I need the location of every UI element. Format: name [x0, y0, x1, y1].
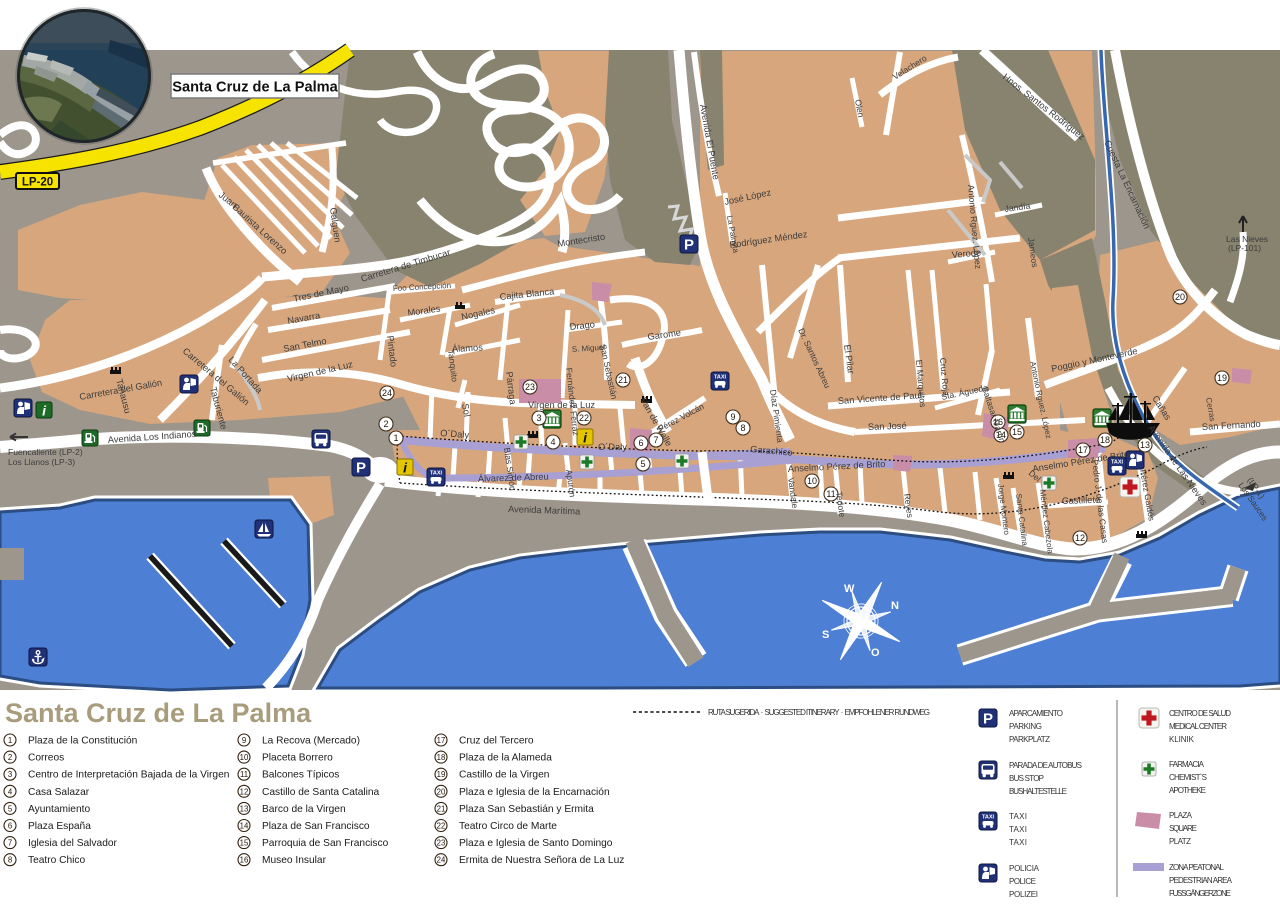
svg-text:6: 6 — [8, 822, 12, 831]
svg-text:APARCAMIENTO: APARCAMIENTO — [1009, 709, 1063, 718]
svg-text:Los Llanos (LP-3): Los Llanos (LP-3) — [8, 457, 75, 467]
svg-text:MEDICAL CENTER: MEDICAL CENTER — [1169, 722, 1227, 731]
svg-text:Plaza de la Constitución: Plaza de la Constitución — [28, 736, 137, 747]
svg-text:4: 4 — [8, 787, 13, 796]
svg-text:24: 24 — [437, 856, 446, 865]
svg-text:KLINIK: KLINIK — [1169, 735, 1195, 744]
svg-text:LP-20: LP-20 — [22, 177, 53, 189]
svg-text:TAXI: TAXI — [1009, 812, 1027, 821]
svg-text:TAXI: TAXI — [1009, 825, 1027, 834]
svg-text:18: 18 — [437, 753, 446, 762]
svg-text:PARADA DE AUTOBUS: PARADA DE AUTOBUS — [1009, 761, 1082, 770]
svg-text:Plaza e Iglesia de Santo Domin: Plaza e Iglesia de Santo Domingo — [459, 838, 613, 849]
svg-text:Plaza San Sebastián y Ermita: Plaza San Sebastián y Ermita — [459, 804, 594, 815]
svg-text:BUS STOP: BUS STOP — [1009, 774, 1044, 783]
svg-text:2: 2 — [8, 753, 12, 762]
svg-text:PARKING: PARKING — [1009, 722, 1042, 731]
svg-text:Teatro Chico: Teatro Chico — [28, 855, 86, 866]
svg-text:FUSSGÄNGERZONE: FUSSGÄNGERZONE — [1169, 889, 1231, 898]
svg-text:Ayuntamiento: Ayuntamiento — [28, 804, 90, 815]
svg-text:1: 1 — [8, 736, 12, 745]
svg-text:15: 15 — [240, 839, 249, 848]
svg-text:11: 11 — [240, 770, 248, 779]
svg-text:Iglesia del Salvador: Iglesia del Salvador — [28, 838, 118, 849]
svg-text:POLIZEI: POLIZEI — [1009, 890, 1038, 899]
svg-text:1: 1 — [393, 433, 398, 443]
svg-text:3: 3 — [8, 770, 12, 779]
svg-text:RUTA SUGERIDA · SUGGESTED IT: RUTA SUGERIDA · SUGGESTED ITINERARY · EM… — [708, 708, 930, 717]
svg-text:14: 14 — [240, 822, 249, 831]
svg-text:CHEMIST`S: CHEMIST`S — [1169, 773, 1207, 782]
svg-text:Parroquia de San Francisco: Parroquia de San Francisco — [262, 838, 389, 849]
svg-text:O´Daly: O´Daly — [598, 442, 627, 452]
svg-text:15: 15 — [1012, 427, 1022, 437]
svg-text:PARKPLATZ: PARKPLATZ — [1009, 735, 1050, 744]
svg-text:Museo Insular: Museo Insular — [262, 855, 327, 866]
svg-text:5: 5 — [8, 804, 13, 813]
svg-text:13: 13 — [1140, 440, 1150, 450]
svg-text:POLICE: POLICE — [1009, 877, 1036, 886]
svg-text:Castillo de Santa Catalina: Castillo de Santa Catalina — [262, 787, 380, 798]
svg-text:Castillete: Castillete — [1062, 495, 1101, 506]
svg-text:19: 19 — [437, 770, 446, 779]
svg-text:20: 20 — [437, 787, 446, 796]
svg-text:17: 17 — [437, 736, 446, 745]
svg-text:3: 3 — [536, 413, 541, 423]
svg-text:Teatro Circo de Marte: Teatro Circo de Marte — [459, 821, 557, 832]
svg-text:Plaza de San Francisco: Plaza de San Francisco — [262, 821, 370, 832]
svg-text:10: 10 — [807, 476, 817, 486]
svg-text:APOTHEKE: APOTHEKE — [1169, 786, 1206, 795]
svg-text:20: 20 — [1175, 292, 1185, 302]
svg-text:10: 10 — [240, 753, 249, 762]
svg-text:Centro de Interpretación Bajad: Centro de Interpretación Bajada de la Vi… — [28, 770, 229, 781]
svg-text:8: 8 — [8, 856, 12, 865]
svg-text:24: 24 — [382, 388, 392, 398]
svg-text:Santa Cruz de La Palma: Santa Cruz de La Palma — [5, 698, 312, 728]
svg-text:Balcones Típicos: Balcones Típicos — [262, 770, 339, 781]
svg-text:13: 13 — [240, 804, 249, 813]
svg-text:O: O — [871, 647, 880, 659]
svg-text:PLATZ: PLATZ — [1169, 837, 1191, 846]
svg-text:7: 7 — [8, 839, 12, 848]
svg-text:PEDESTRIAN AREA: PEDESTRIAN AREA — [1169, 876, 1233, 885]
svg-text:17: 17 — [1078, 445, 1088, 455]
svg-text:Santa Cruz de La Palma: Santa Cruz de La Palma — [172, 80, 338, 96]
svg-text:21: 21 — [437, 804, 446, 813]
svg-text:19: 19 — [1217, 373, 1227, 383]
svg-text:(LP-101): (LP-101) — [1228, 243, 1261, 253]
svg-text:Plaza España: Plaza España — [28, 821, 91, 832]
svg-text:PLAZA: PLAZA — [1169, 811, 1193, 820]
svg-text:Cruz del Tercero: Cruz del Tercero — [459, 736, 534, 747]
svg-text:Placeta Borrero: Placeta Borrero — [262, 753, 333, 764]
svg-text:Ermita de Nuestra Señora de La: Ermita de Nuestra Señora de La Luz — [459, 855, 624, 866]
svg-text:7: 7 — [653, 435, 658, 445]
svg-text:O´Daly: O´Daly — [440, 428, 470, 440]
svg-text:Fuencaliente (LP-2): Fuencaliente (LP-2) — [8, 447, 83, 457]
svg-text:Virgen de la Luz: Virgen de la Luz — [528, 400, 595, 410]
svg-text:22: 22 — [437, 822, 446, 831]
svg-text:S: S — [822, 629, 829, 641]
svg-text:16: 16 — [240, 856, 249, 865]
svg-text:BUSHALTESTELLE: BUSHALTESTELLE — [1009, 787, 1067, 796]
svg-text:San José: San José — [868, 421, 907, 432]
svg-text:Plaza de la Alameda: Plaza de la Alameda — [459, 753, 552, 764]
svg-text:W: W — [844, 583, 855, 595]
svg-text:9: 9 — [730, 412, 735, 422]
svg-text:ZONA PEATONAL: ZONA PEATONAL — [1169, 863, 1225, 872]
svg-text:9: 9 — [242, 736, 246, 745]
svg-text:2: 2 — [383, 419, 388, 429]
svg-text:FARMACIA: FARMACIA — [1169, 760, 1205, 769]
svg-text:N: N — [891, 600, 899, 612]
svg-text:Barco de la Virgen: Barco de la Virgen — [262, 804, 346, 815]
svg-text:4: 4 — [550, 437, 555, 447]
svg-text:23: 23 — [437, 839, 446, 848]
svg-text:TAXI: TAXI — [1009, 838, 1027, 847]
svg-text:SQUARE: SQUARE — [1169, 824, 1197, 833]
svg-text:23: 23 — [525, 382, 535, 392]
svg-text:6: 6 — [638, 438, 643, 448]
svg-text:La Recova (Mercado): La Recova (Mercado) — [262, 736, 360, 747]
svg-text:18: 18 — [1100, 435, 1110, 445]
svg-text:CENTRO DE SALUD: CENTRO DE SALUD — [1169, 709, 1231, 718]
svg-text:5: 5 — [640, 459, 645, 469]
svg-text:12: 12 — [1075, 533, 1085, 543]
svg-text:Correos: Correos — [28, 753, 64, 764]
svg-text:12: 12 — [240, 787, 249, 796]
svg-text:8: 8 — [740, 423, 745, 433]
svg-text:21: 21 — [618, 375, 628, 385]
svg-text:Castillo de la Virgen: Castillo de la Virgen — [459, 770, 549, 781]
svg-text:Casa Salazar: Casa Salazar — [28, 787, 90, 798]
svg-text:Plaza e Iglesia de la Encarnac: Plaza e Iglesia de la Encarnación — [459, 787, 610, 798]
svg-text:POLICIA: POLICIA — [1009, 864, 1040, 873]
